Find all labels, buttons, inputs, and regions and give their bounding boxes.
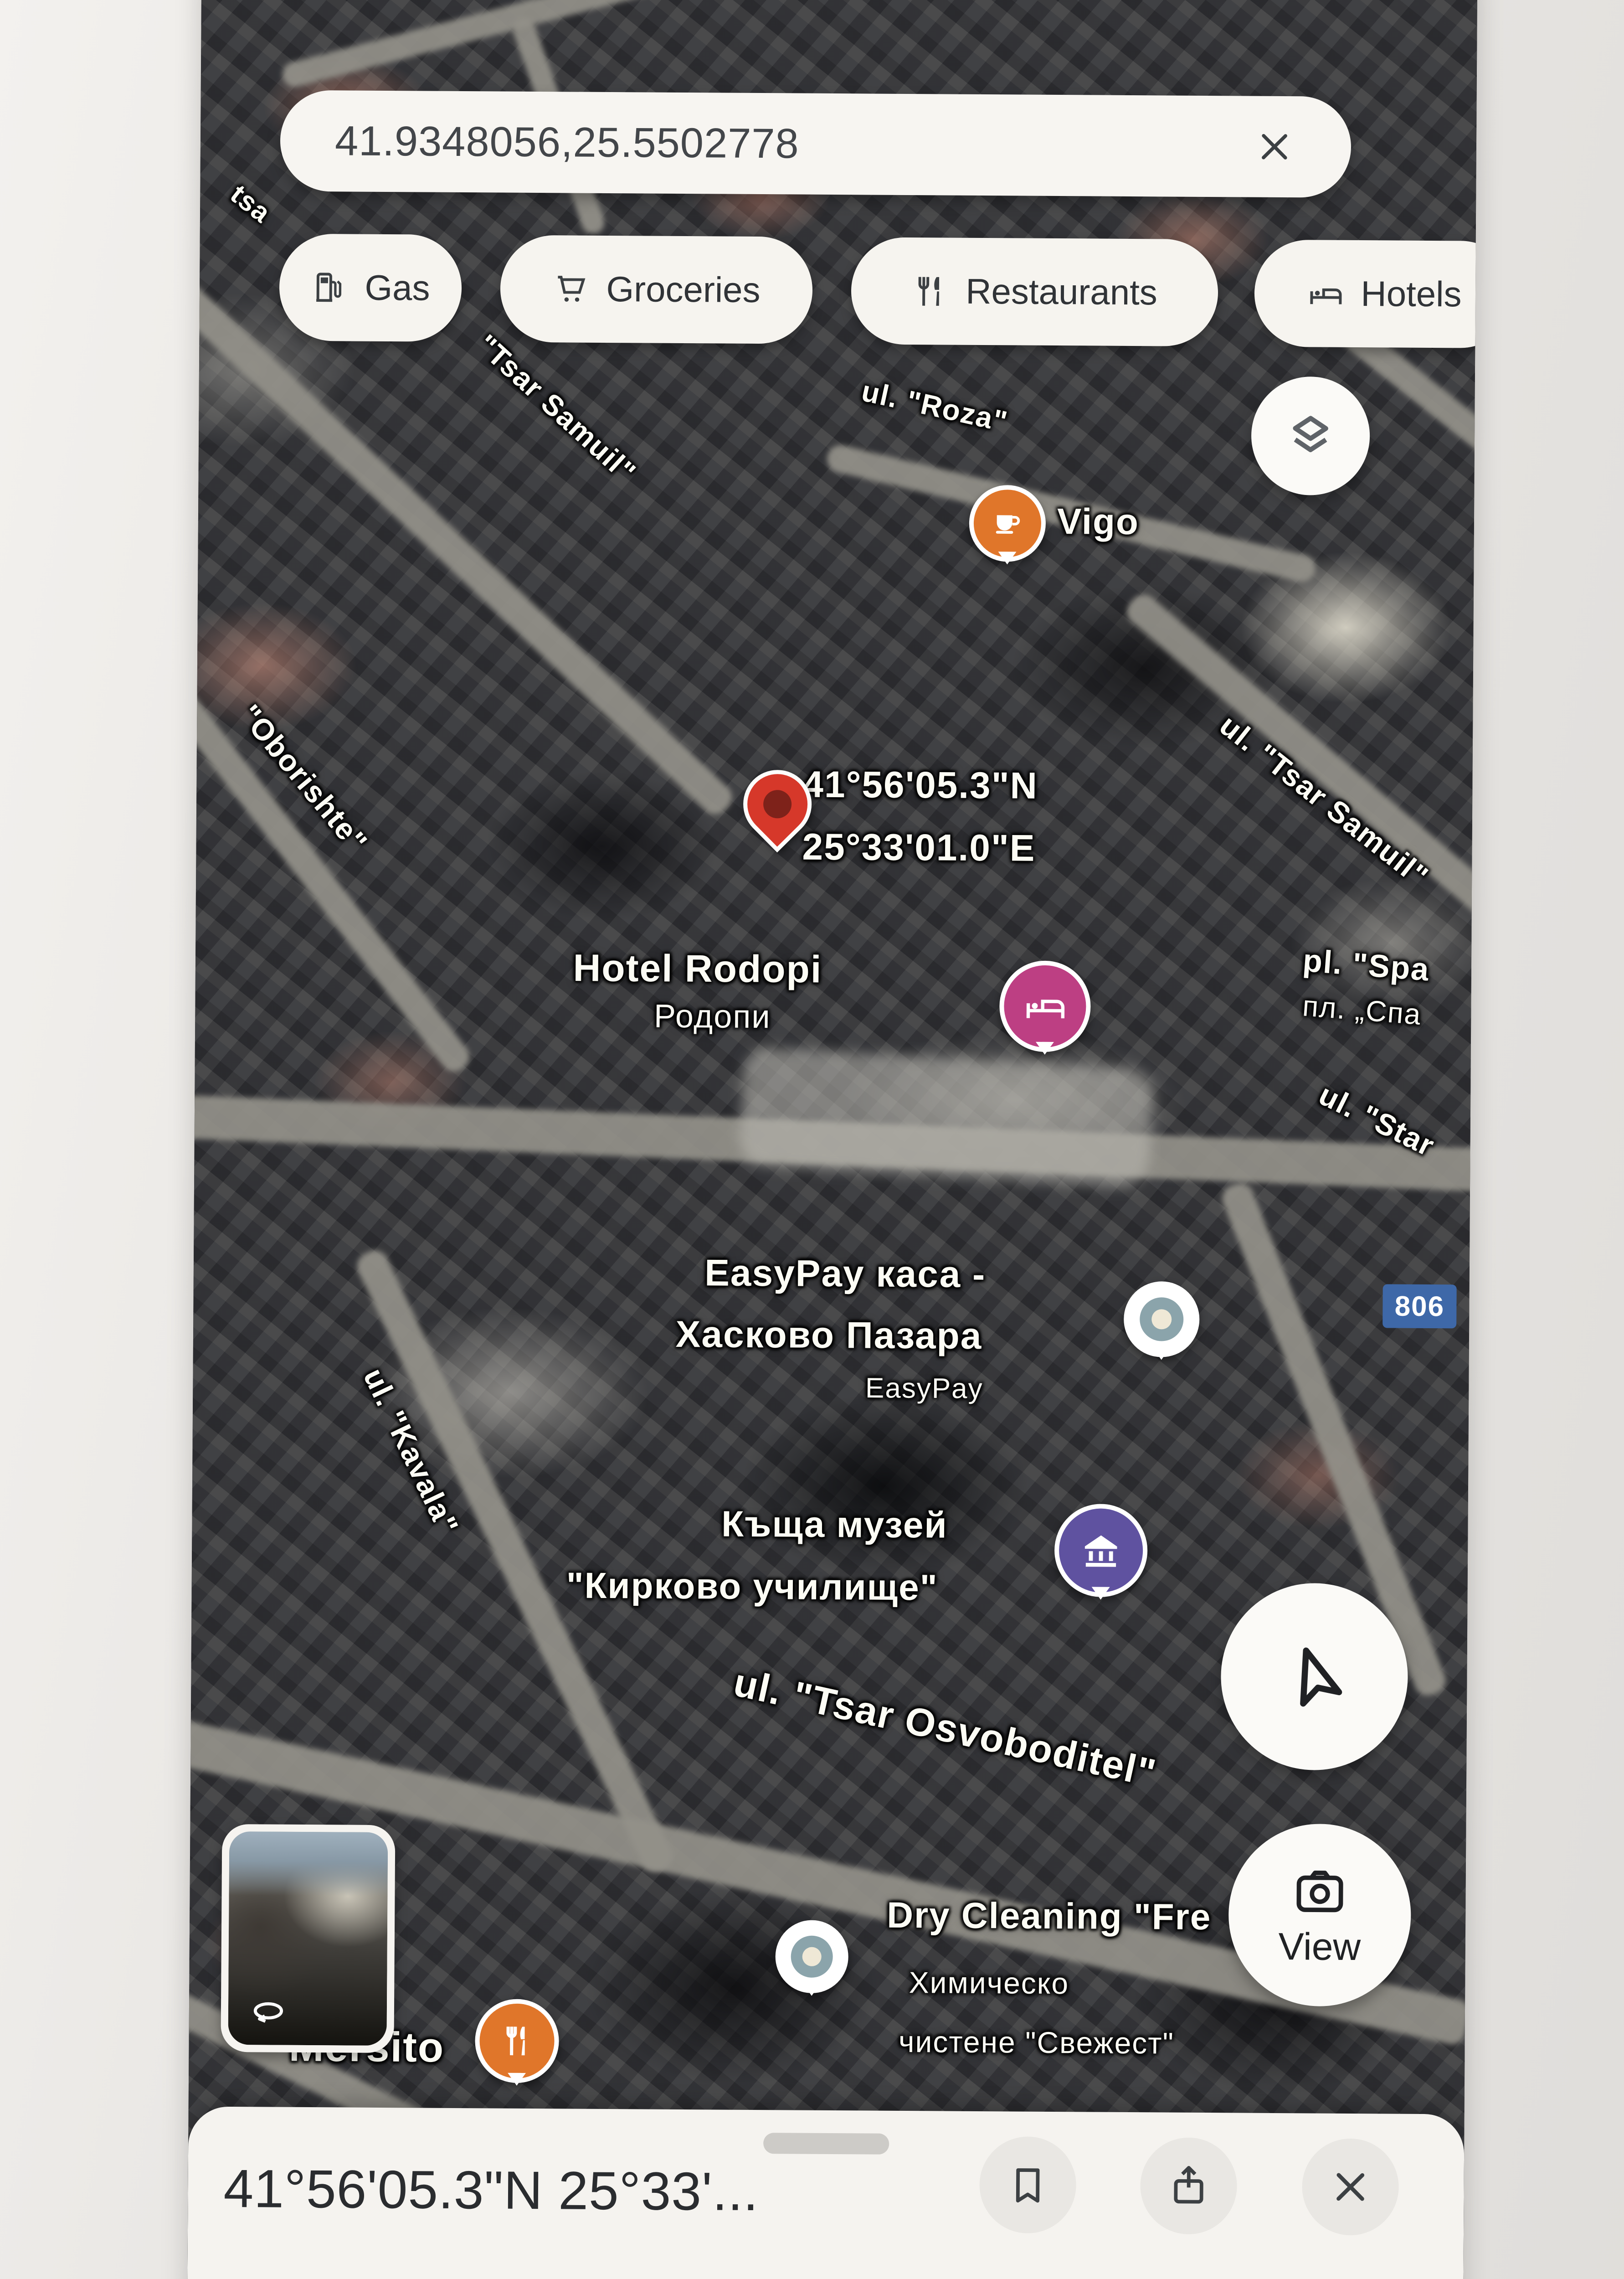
dry-cleaning-ring-icon: [791, 1935, 833, 1978]
poi-label-hotel-rodopi[interactable]: Hotel Rodopi: [573, 946, 822, 991]
search-bar[interactable]: 41.9348056,25.5502778: [280, 90, 1351, 198]
close-icon: [1326, 2163, 1374, 2211]
chip-restaurants[interactable]: Restaurants: [851, 237, 1218, 346]
poi-label-dry-cleaning-line1[interactable]: Dry Cleaning "Fre: [887, 1894, 1212, 1938]
chip-gas-label: Gas: [365, 267, 430, 309]
poi-pin-dry-cleaning[interactable]: [775, 1920, 848, 1993]
poi-pin-hotel-rodopi[interactable]: [999, 960, 1091, 1052]
maps-app-screenshot: tsa "Tsar Samuil" ul. "Roza" "Oborishte"…: [186, 0, 1478, 2279]
chip-gas[interactable]: Gas: [279, 234, 462, 342]
pin-coordinate-line2: 25°33'01.0"E: [802, 826, 1035, 870]
bookmark-icon: [1004, 2161, 1052, 2209]
street-view-button[interactable]: View: [1228, 1823, 1411, 2006]
camera-icon: [1290, 1861, 1350, 1921]
poi-label-easypay-sub: EasyPay: [865, 1372, 983, 1405]
shopping-cart-icon: [552, 270, 591, 309]
search-query[interactable]: 41.9348056,25.5502778: [335, 117, 1253, 170]
bottom-sheet: 41°56'05.3"N 25°33'... Directions Start …: [186, 2106, 1465, 2279]
bed-icon: [1021, 983, 1069, 1031]
poi-pin-museum[interactable]: [1054, 1504, 1148, 1597]
chip-restaurants-label: Restaurants: [966, 271, 1157, 314]
street-view-button-label: View: [1278, 1924, 1361, 1969]
bookmark-button[interactable]: [979, 2136, 1076, 2233]
poi-pin-easypay[interactable]: [1124, 1281, 1200, 1357]
poi-label-dry-cleaning-line3: чистене "Свежест": [899, 2024, 1174, 2061]
poi-pin-vigo-cafe[interactable]: [969, 485, 1046, 562]
plaza-area: [738, 1046, 1155, 1188]
poi-label-easypay-line1[interactable]: EasyPay каса -: [704, 1252, 986, 1296]
rotate-360-icon: [241, 1992, 296, 2032]
poi-label-museum-line1[interactable]: Къща музей: [721, 1503, 948, 1547]
layers-icon: [1282, 407, 1339, 464]
sheet-title: 41°56'05.3"N 25°33'...: [223, 2158, 962, 2224]
poi-label-easypay-line2: Хасково Пазара: [675, 1313, 982, 1358]
street-view-photo: [228, 1831, 388, 2046]
clear-search-icon[interactable]: [1253, 125, 1297, 169]
sheet-drag-handle[interactable]: [763, 2133, 889, 2155]
street-view-thumbnail[interactable]: [221, 1824, 395, 2053]
poi-label-vigo[interactable]: Vigo: [1057, 500, 1139, 543]
coffee-cup-icon: [988, 504, 1028, 543]
museum-icon: [1077, 1526, 1125, 1575]
pin-coordinate-line1: 41°56'05.3"N: [802, 763, 1038, 808]
chip-groceries[interactable]: Groceries: [500, 235, 812, 344]
hotel-bed-icon: [1307, 274, 1346, 313]
gas-pump-icon: [311, 268, 349, 307]
share-icon: [1165, 2162, 1213, 2210]
chip-hotels[interactable]: Hotels: [1254, 240, 1477, 348]
poi-label-museum-line2: "Кирково училище": [566, 1564, 938, 1609]
dropped-pin[interactable]: [743, 770, 812, 839]
chip-groceries-label: Groceries: [606, 268, 761, 311]
easypay-ring-icon: [1140, 1297, 1184, 1341]
navigation-arrow-icon: [1263, 1625, 1366, 1728]
route-badge-806: 806: [1382, 1284, 1457, 1328]
share-button[interactable]: [1140, 2137, 1237, 2234]
chip-hotels-label: Hotels: [1361, 273, 1462, 315]
fork-knife-icon: [495, 2020, 539, 2063]
compass-locate-button[interactable]: [1220, 1583, 1408, 1770]
dropped-pin-icon: [729, 756, 826, 852]
poi-label-hotel-rodopi-alt: Родопи: [654, 998, 771, 1036]
poi-label-dry-cleaning-line2: Химическо: [909, 1965, 1069, 2001]
map-layers-button[interactable]: [1251, 376, 1370, 496]
close-sheet-button[interactable]: [1302, 2138, 1399, 2235]
poi-pin-mersito[interactable]: [475, 1999, 559, 2083]
restaurant-icon: [912, 272, 951, 311]
